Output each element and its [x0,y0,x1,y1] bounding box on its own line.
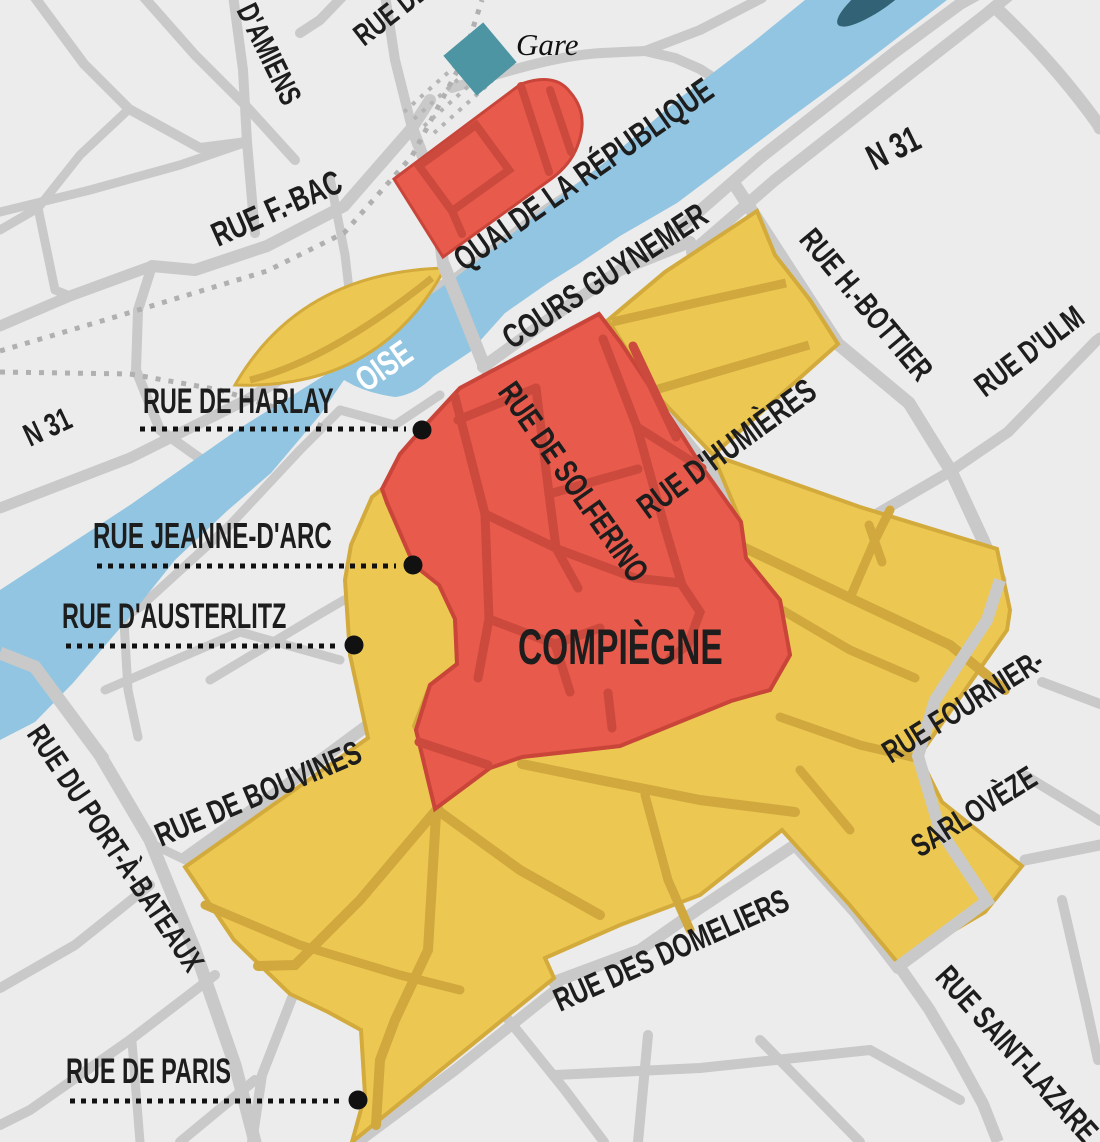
svg-text:RUE JEANNE-D'ARC: RUE JEANNE-D'ARC [93,516,332,556]
svg-text:Gare: Gare [516,27,579,62]
svg-text:RUE DE PARIS: RUE DE PARIS [66,1052,231,1091]
svg-text:RUE D'AUSTERLITZ: RUE D'AUSTERLITZ [62,597,286,636]
svg-text:COMPIÈGNE: COMPIÈGNE [518,619,723,675]
svg-text:RUE DE HARLAY: RUE DE HARLAY [143,382,334,421]
